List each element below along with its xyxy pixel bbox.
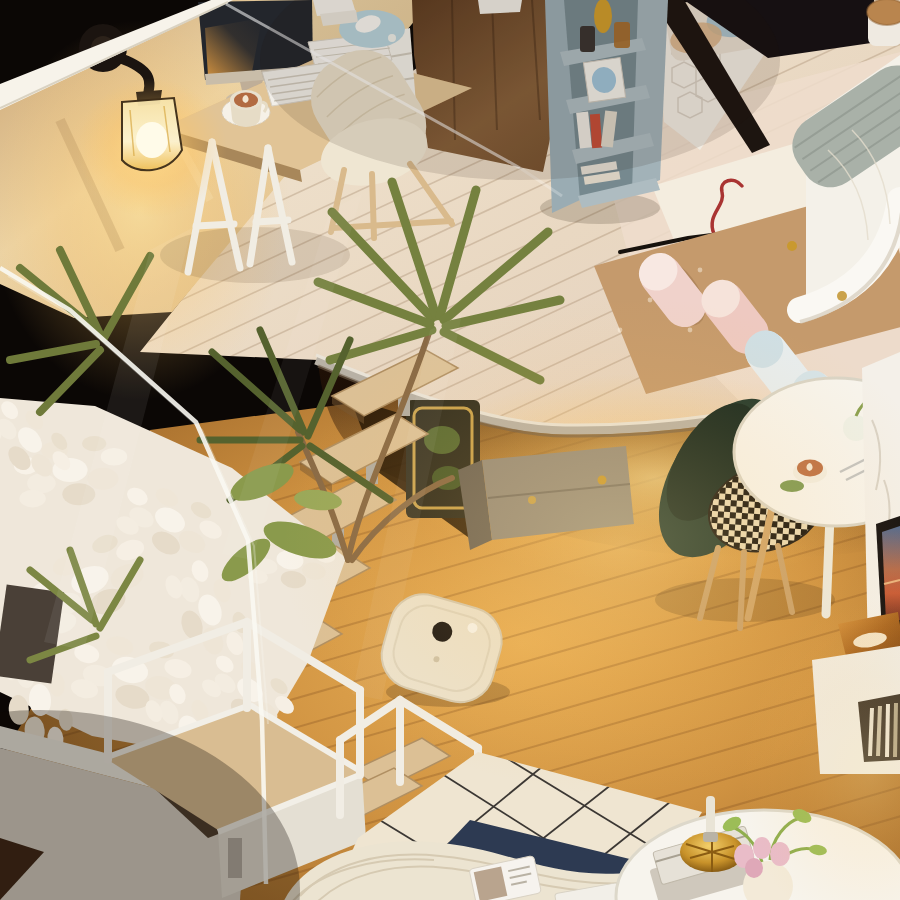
scene-canvas <box>0 0 900 900</box>
bed-gold-foot-2 <box>837 291 847 301</box>
bed-gold-foot <box>787 241 797 251</box>
lamp-bulb <box>136 122 168 158</box>
cork-stool <box>867 0 900 46</box>
dollhouse-photo <box>0 0 900 900</box>
